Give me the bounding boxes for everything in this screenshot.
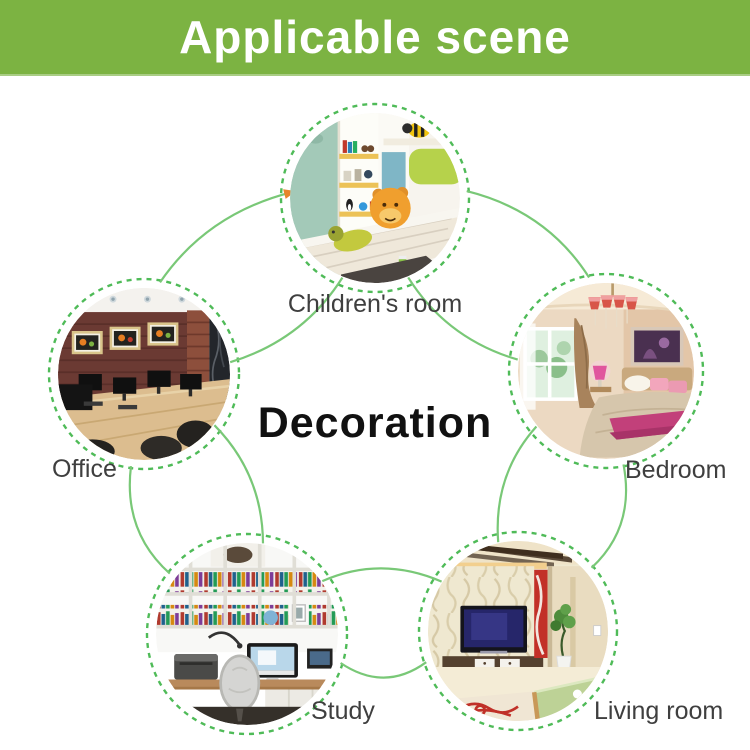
label-study: Study [311,697,375,726]
connector-outer-study-office [130,466,170,573]
label-children-room: Children's room [288,290,462,319]
center-title: Decoration [258,399,493,448]
connector-inner-living-study [322,568,441,581]
label-office: Office [52,455,117,484]
connector-inner-bedroom-living [498,427,537,543]
connector-inner-study-office [214,425,263,543]
living-room-photo [428,541,608,721]
label-bedroom: Bedroom [625,456,726,485]
connector-outer-children-bedroom [467,191,589,277]
bedroom-scene [518,283,694,459]
connector-outer-bedroom-living [592,464,626,567]
bedroom-photo [518,283,694,459]
children-room-photo [290,113,460,283]
children-room-scene [290,113,460,283]
connector-outer-office-children [160,192,291,282]
living-room-scene [428,541,608,721]
office-photo [58,288,230,460]
connector-outer-living-study [341,662,427,677]
label-living-room: Living room [594,697,723,726]
office-scene [58,288,230,460]
page: Applicable scene [0,0,750,750]
